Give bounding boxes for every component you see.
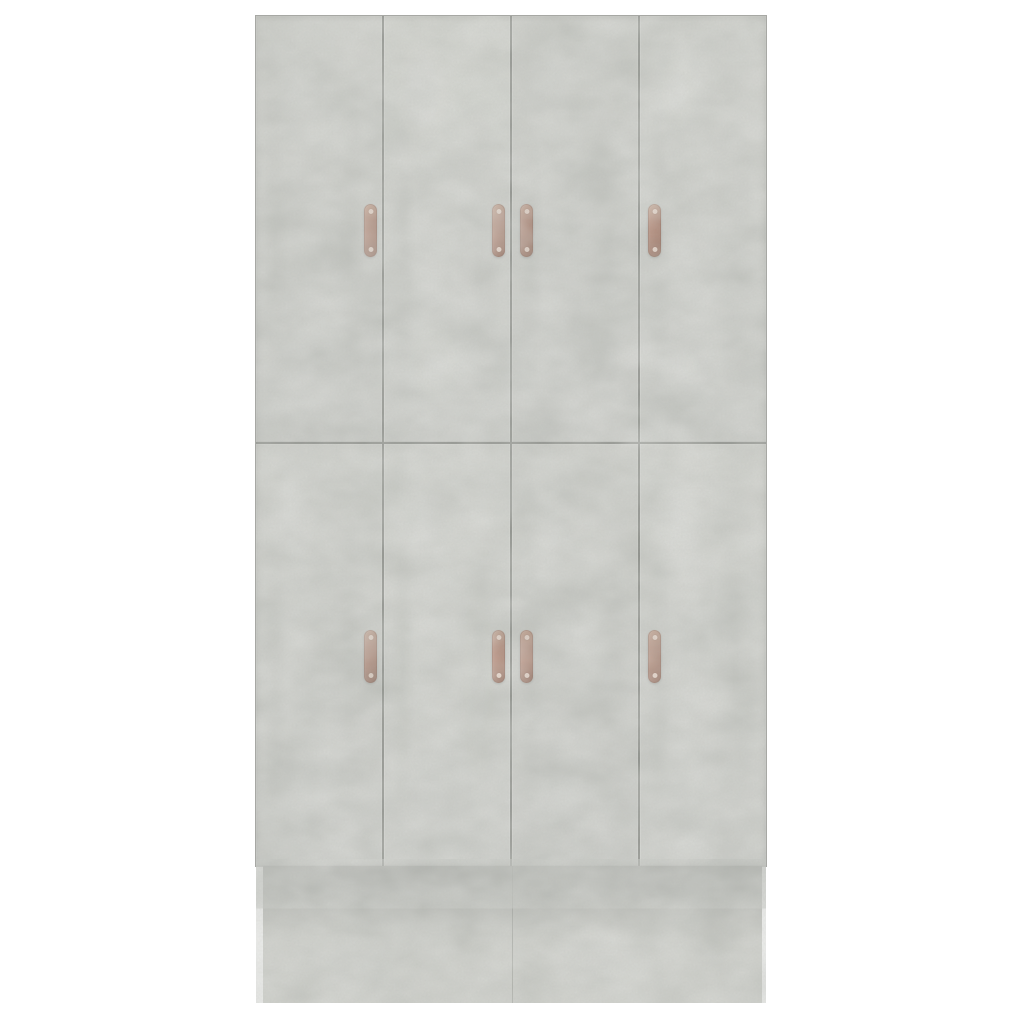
handle-screw <box>524 635 529 640</box>
wardrobe <box>256 16 766 1003</box>
handle-screw <box>368 209 373 214</box>
wardrobe-door-top-1[interactable] <box>256 16 382 442</box>
handle-screw <box>496 635 501 640</box>
handle-screw <box>652 209 657 214</box>
handle-screw <box>496 247 501 252</box>
door-handle[interactable] <box>520 204 533 257</box>
handle-screw <box>524 673 529 678</box>
door-handle[interactable] <box>364 204 377 257</box>
handle-screw <box>652 635 657 640</box>
handle-screw <box>524 247 529 252</box>
wardrobe-door-top-3[interactable] <box>512 16 638 442</box>
door-handle[interactable] <box>492 204 505 257</box>
handle-screw <box>368 673 373 678</box>
door-handle[interactable] <box>492 630 505 683</box>
door-handle[interactable] <box>520 630 533 683</box>
wardrobe-door-bottom-4[interactable] <box>640 444 766 866</box>
wardrobe-door-top-4[interactable] <box>640 16 766 442</box>
door-handle[interactable] <box>648 204 661 257</box>
handle-screw <box>652 673 657 678</box>
handle-screw <box>368 247 373 252</box>
product-photo <box>0 0 1024 1024</box>
handle-screw <box>496 209 501 214</box>
handle-screw <box>524 209 529 214</box>
wardrobe-door-top-2[interactable] <box>384 16 510 442</box>
base-panel-left <box>263 866 512 1003</box>
wardrobe-base <box>263 866 762 1003</box>
door-grid <box>256 16 766 866</box>
door-handle[interactable] <box>364 630 377 683</box>
wardrobe-door-bottom-1[interactable] <box>256 444 382 866</box>
door-handle[interactable] <box>648 630 661 683</box>
base-panel-right <box>512 866 762 1003</box>
handle-screw <box>368 635 373 640</box>
wardrobe-door-bottom-2[interactable] <box>384 444 510 866</box>
handle-screw <box>652 247 657 252</box>
handle-screw <box>496 673 501 678</box>
wardrobe-door-bottom-3[interactable] <box>512 444 638 866</box>
